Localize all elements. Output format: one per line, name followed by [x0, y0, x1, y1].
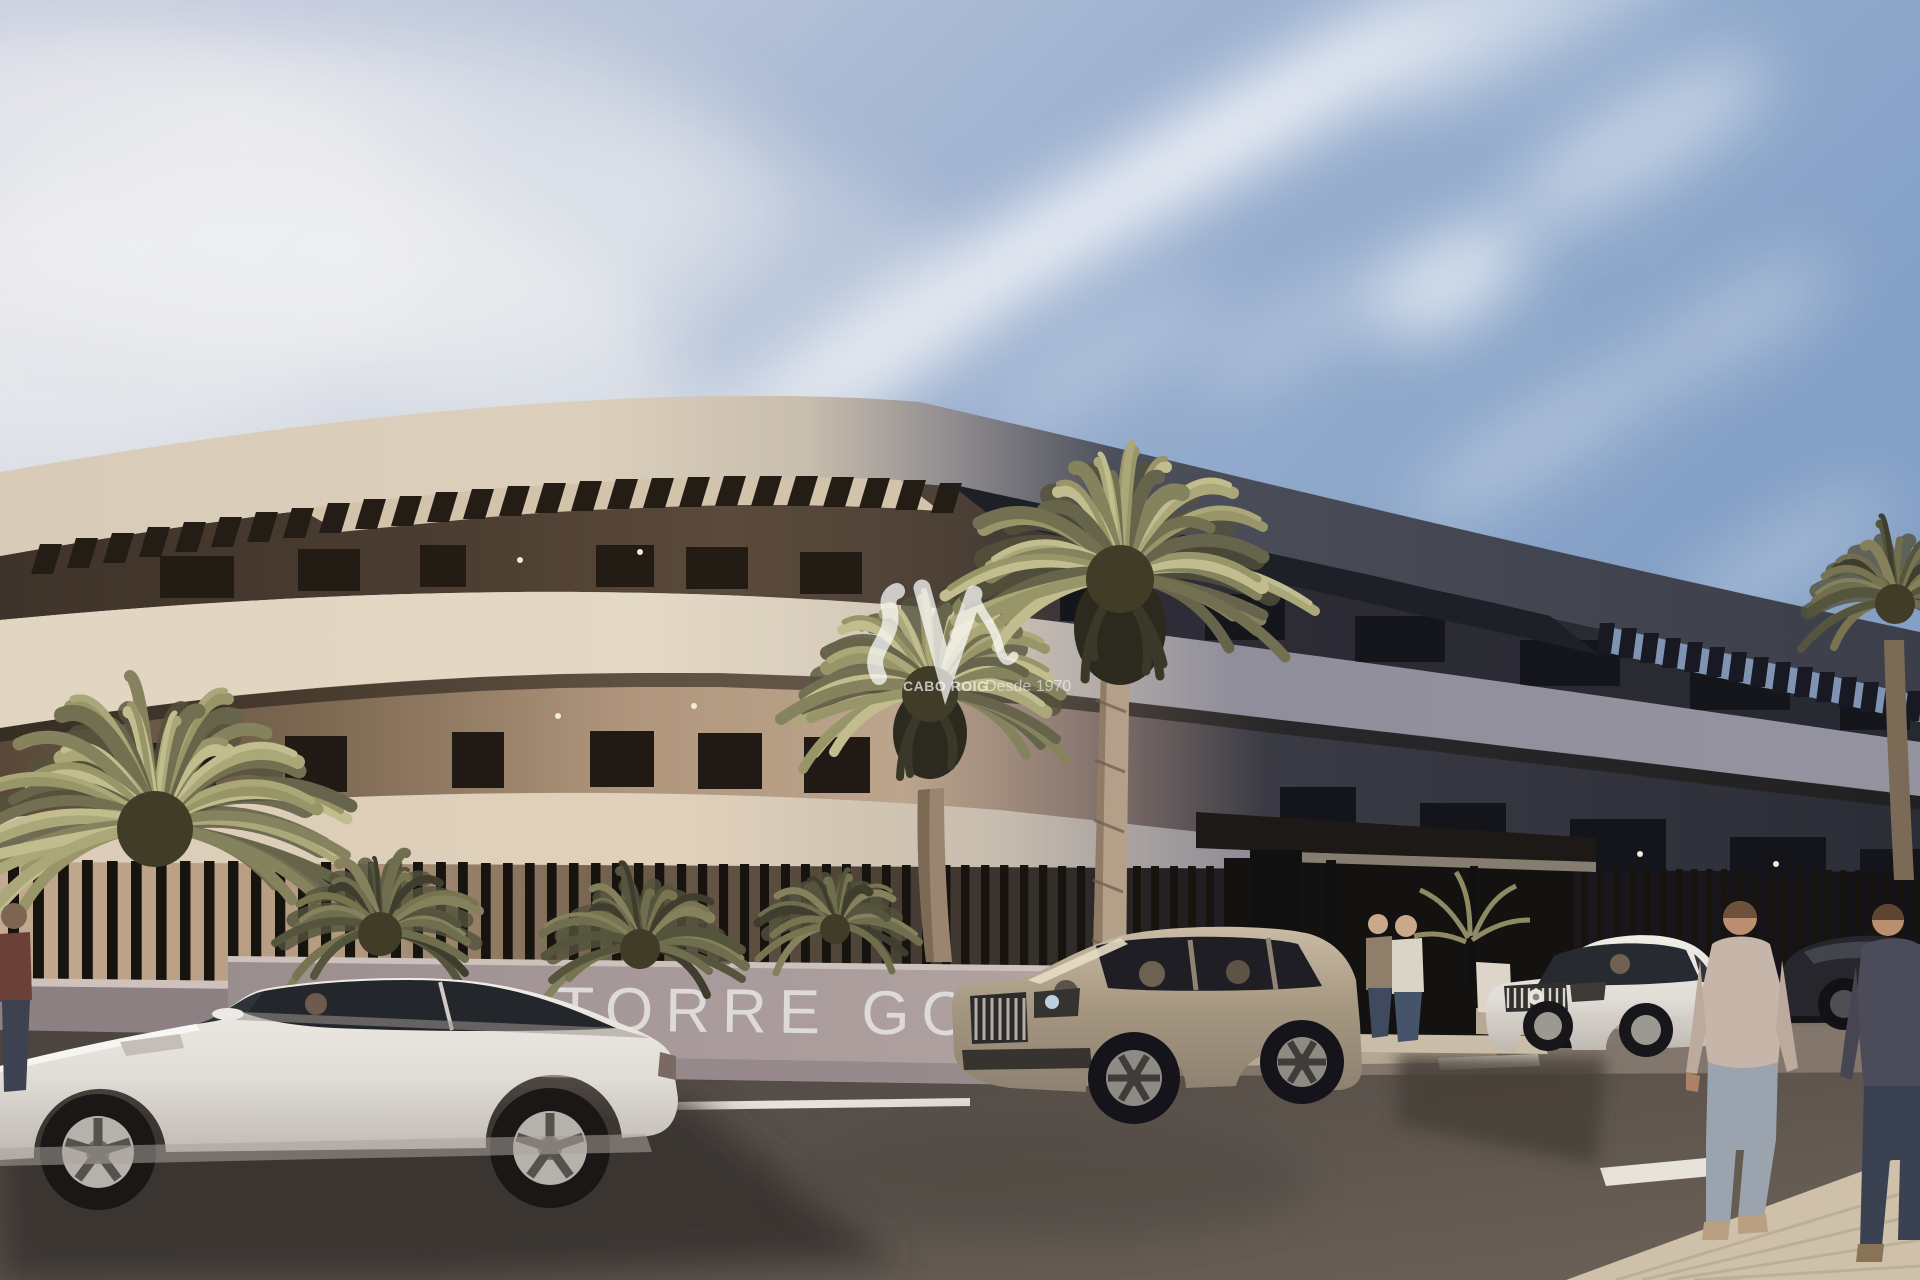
svg-text:Desde 1970: Desde 1970 — [985, 678, 1071, 695]
svg-text:CABO ROIG: CABO ROIG — [903, 678, 988, 694]
